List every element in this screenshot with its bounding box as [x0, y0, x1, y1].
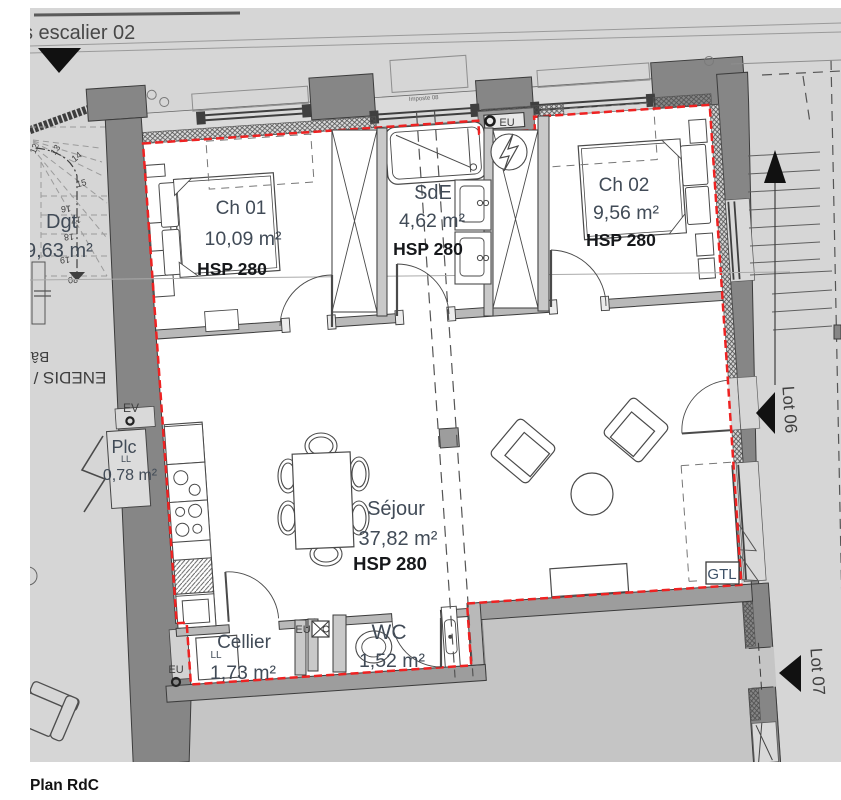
- svg-text:WC: WC: [372, 621, 407, 644]
- svg-text:LL: LL: [210, 650, 222, 661]
- svg-text:ENEDIS /: ENEDIS /: [33, 368, 106, 387]
- svg-text:Lot 07: Lot 07: [806, 647, 828, 695]
- svg-text:EU: EU: [295, 624, 310, 636]
- svg-text:EU: EU: [168, 664, 183, 676]
- svg-text:EV: EV: [123, 401, 139, 415]
- svg-text:SdE: SdE: [414, 182, 452, 204]
- svg-text:EU: EU: [499, 117, 514, 129]
- svg-text:10,09 m²: 10,09 m²: [205, 228, 282, 250]
- svg-text:Lot 06: Lot 06: [778, 385, 800, 433]
- svg-text:Dgt: Dgt: [46, 211, 78, 233]
- svg-text:Bâ: Bâ: [30, 348, 49, 365]
- svg-text:Séjour: Séjour: [367, 498, 425, 520]
- svg-text:Cellier: Cellier: [217, 632, 272, 653]
- svg-text:1,52 m²: 1,52 m²: [359, 650, 426, 672]
- svg-text:LL: LL: [121, 454, 131, 464]
- svg-text:9,63 m²: 9,63 m²: [25, 240, 93, 262]
- svg-text:1,73 m²: 1,73 m²: [210, 662, 277, 684]
- svg-text:HSP 280: HSP 280: [586, 230, 656, 250]
- svg-text:9,56 m²: 9,56 m²: [593, 202, 660, 224]
- svg-text:s escalier 02: s escalier 02: [23, 22, 135, 44]
- svg-text:4,62 m²: 4,62 m²: [399, 210, 466, 232]
- svg-text:37,82 m²: 37,82 m²: [359, 528, 438, 550]
- svg-text:HSP 280: HSP 280: [393, 239, 463, 259]
- svg-text:Ch 01: Ch 01: [216, 198, 267, 219]
- svg-text:GTL: GTL: [707, 566, 736, 583]
- svg-text:0,78 m²: 0,78 m²: [103, 467, 158, 484]
- svg-text:HSP 280: HSP 280: [353, 553, 427, 574]
- svg-text:Plan RdC: Plan RdC: [30, 777, 99, 794]
- svg-text:HSP 280: HSP 280: [197, 259, 267, 279]
- svg-text:Ch 02: Ch 02: [599, 175, 650, 196]
